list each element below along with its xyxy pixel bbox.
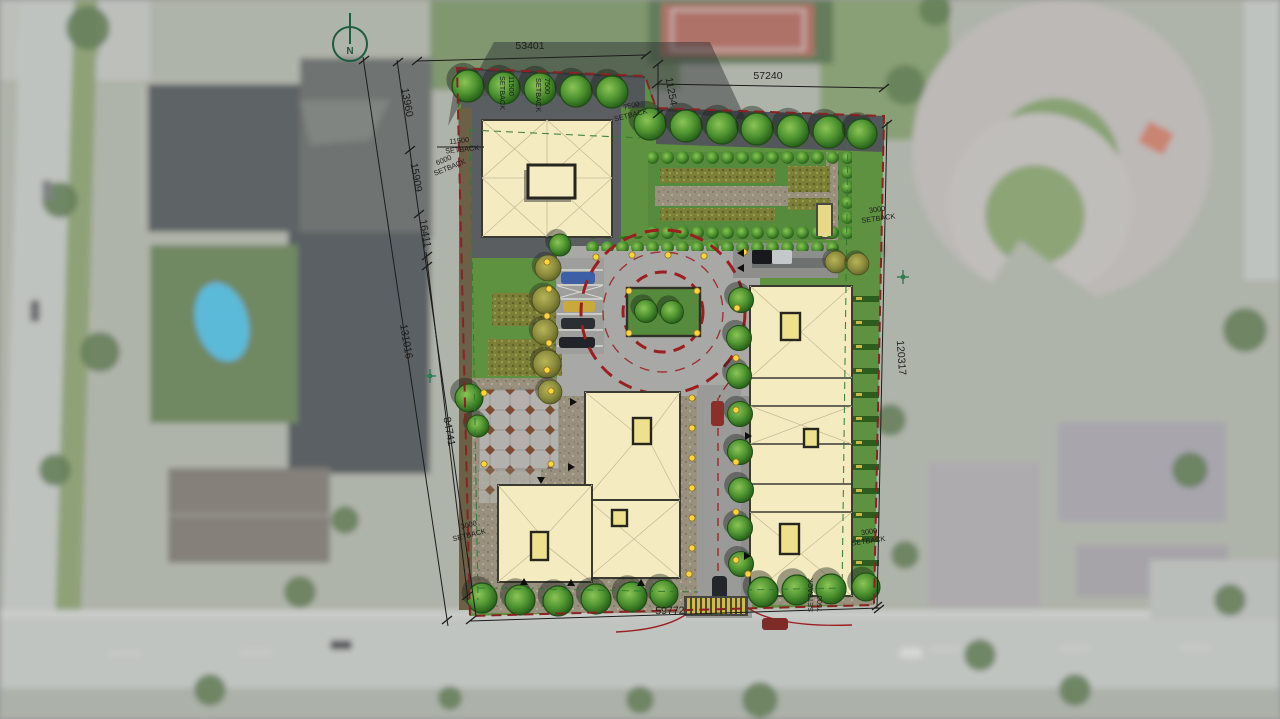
car-blue xyxy=(561,272,595,284)
truck-layby xyxy=(752,250,792,264)
skylight xyxy=(531,532,548,560)
site-plan-svg: 53401 57240 11254 13960 15909 16411 1310… xyxy=(0,0,1280,719)
skylight xyxy=(780,524,799,554)
skylight xyxy=(781,313,800,340)
north-label: N xyxy=(346,46,353,57)
car-street-red xyxy=(762,618,788,630)
setback-label: SETBACK xyxy=(498,76,507,110)
garden-shed xyxy=(817,204,832,238)
skylight xyxy=(633,418,651,444)
apartment-building-northwest xyxy=(482,120,612,237)
skylight xyxy=(804,429,818,447)
setback-label: 7500 xyxy=(543,78,552,94)
penthouse xyxy=(528,165,575,198)
site-plan-rendering: 53401 57240 11254 13960 15909 16411 1310… xyxy=(0,0,1280,719)
car-yellow xyxy=(563,301,595,312)
dimension-label: 53401 xyxy=(515,40,544,52)
setback-label: 7500 xyxy=(815,596,824,612)
dimension-label: 57240 xyxy=(753,70,782,82)
setback-label: SETBACK xyxy=(806,578,815,612)
setback-label: 11500 xyxy=(507,76,516,96)
garden-south-hedge xyxy=(585,236,840,251)
car-dark xyxy=(561,318,595,329)
car-dark xyxy=(559,337,595,348)
dimension-label: 120317 xyxy=(894,340,908,376)
setback-label: SETBACK xyxy=(534,78,543,112)
dimension-label: 59772 xyxy=(655,605,685,618)
skylight xyxy=(612,510,627,526)
northeast-garden xyxy=(648,150,852,240)
townhouse-row-east xyxy=(750,286,852,596)
site-plan-overlay xyxy=(424,42,909,632)
car-red xyxy=(711,401,724,426)
